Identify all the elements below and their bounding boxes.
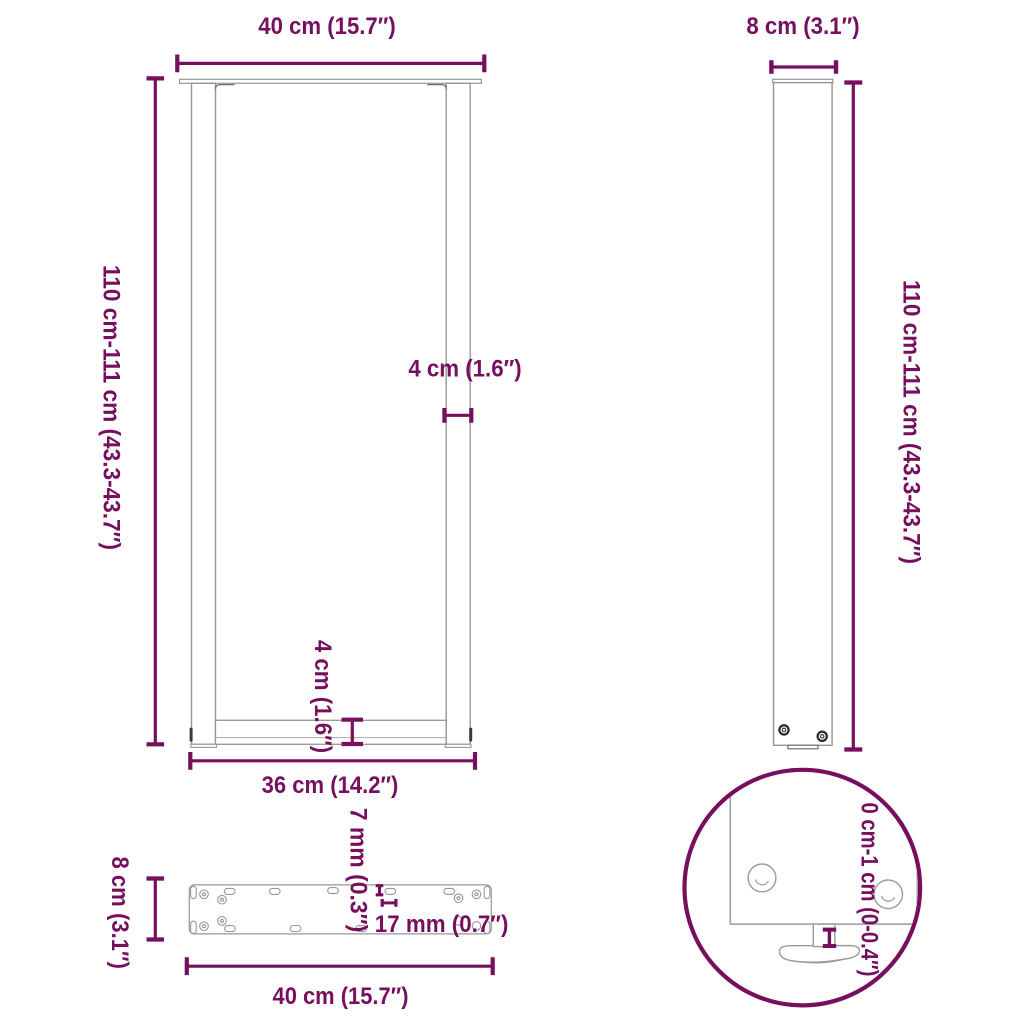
svg-text:8 cm (3.1″): 8 cm (3.1″): [746, 13, 859, 40]
svg-text:110 cm-111 cm (43.3-43.7″): 110 cm-111 cm (43.3-43.7″): [897, 280, 924, 564]
svg-text:40 cm (15.7″): 40 cm (15.7″): [273, 983, 409, 1010]
svg-text:36 cm (14.2″): 36 cm (14.2″): [262, 772, 399, 799]
svg-text:7 mm (0.3″): 7 mm (0.3″): [345, 808, 372, 933]
svg-text:17 mm (0.7″): 17 mm (0.7″): [375, 911, 509, 938]
svg-text:40 cm (15.7″): 40 cm (15.7″): [258, 13, 396, 40]
svg-text:110 cm-111 cm (43.3-43.7″): 110 cm-111 cm (43.3-43.7″): [98, 265, 125, 550]
svg-text:4 cm (1.6″): 4 cm (1.6″): [309, 640, 336, 753]
svg-text:8 cm (3.1″): 8 cm (3.1″): [106, 856, 133, 969]
svg-text:4 cm (1.6″): 4 cm (1.6″): [408, 355, 521, 382]
svg-text:0 cm-1 cm (0-0.4″): 0 cm-1 cm (0-0.4″): [856, 803, 883, 977]
